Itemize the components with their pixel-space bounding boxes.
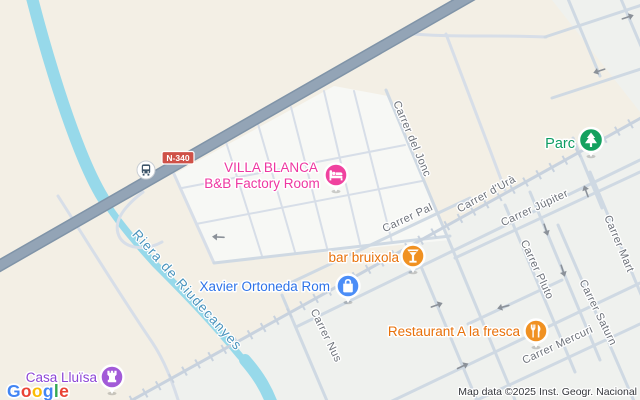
poi-label-restaurant-fresca[interactable]: Restaurant A la fresca [388, 324, 521, 339]
bus-station[interactable] [137, 161, 155, 179]
map-canvas[interactable]: Carrer del Jonc Carrer Pal Carrer d'Urà … [0, 0, 640, 400]
poi-label-parc[interactable]: Parc [545, 136, 575, 152]
road-badge-n340: N-340 [162, 152, 194, 165]
poi-label-villa-blanca-1[interactable]: VILLA BLANCA [224, 160, 318, 175]
map-attribution: Map data ©2025 Inst. Geogr. Nacional [458, 386, 637, 398]
poi-label-bar-bruixola[interactable]: bar bruixola [328, 250, 399, 265]
road-badge-label: N-340 [166, 153, 189, 163]
google-logo[interactable]: Google [7, 381, 69, 400]
poi-label-xavier-ortoneda[interactable]: Xavier Ortoneda Rom [199, 279, 330, 294]
poi-label-villa-blanca-2[interactable]: B&B Factory Room [204, 176, 320, 191]
